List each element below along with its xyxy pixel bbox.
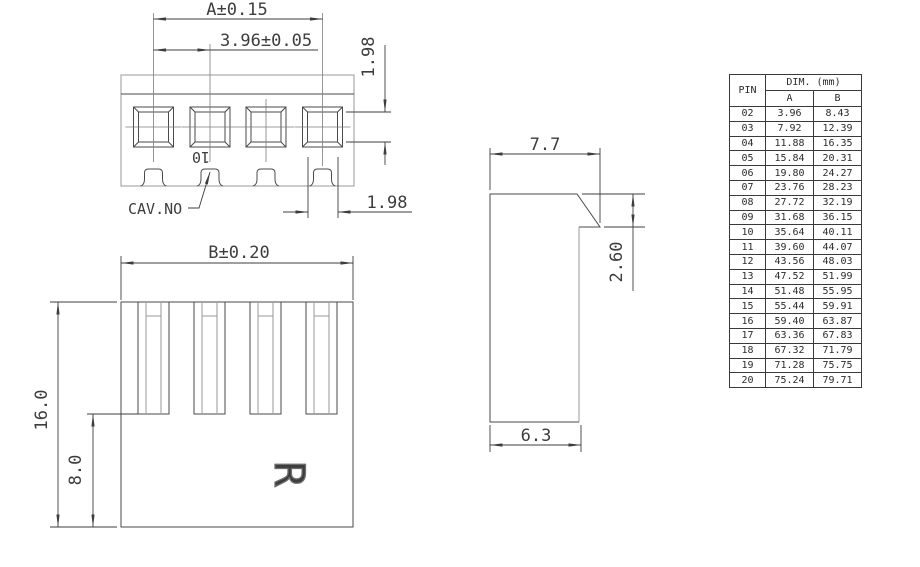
- cell-pin: 03: [730, 121, 766, 136]
- cell-a: 43.56: [766, 254, 814, 269]
- dim-overall-b-text: B±0.20: [208, 243, 269, 263]
- cell-a: 63.36: [766, 328, 814, 343]
- cell-b: 40.11: [814, 225, 862, 240]
- cell-a: 23.76: [766, 180, 814, 195]
- cell-b: 63.87: [814, 314, 862, 329]
- cell-a: 35.64: [766, 225, 814, 240]
- front-view: A±0.15 3.96±0.05 1.98 1.98 CAV.NO 10: [121, 0, 412, 218]
- cell-b: 28.23: [814, 180, 862, 195]
- table-row: 0827.7232.19: [730, 195, 862, 210]
- table-row: 2075.2479.71: [730, 373, 862, 388]
- cell-a: 3.96: [766, 107, 814, 122]
- dim-latch-height-text: 2.60: [607, 242, 627, 283]
- cell-pin: 18: [730, 343, 766, 358]
- table-row: 0931.6836.15: [730, 210, 862, 225]
- cell-b: 51.99: [814, 269, 862, 284]
- dim-slot-depth: [87, 414, 138, 527]
- cell-pin: 15: [730, 299, 766, 314]
- dim-top-width-text: 7.7: [530, 135, 561, 155]
- table-row: 1451.4855.95: [730, 284, 862, 299]
- cell-pin: 14: [730, 284, 766, 299]
- cell-pin: 02: [730, 107, 766, 122]
- dim-height-text: 16.0: [32, 390, 52, 431]
- cell-a: 47.52: [766, 269, 814, 284]
- cav-no-leader: [188, 172, 210, 208]
- dim-top-width: [490, 148, 600, 223]
- table-row: 1139.6044.07: [730, 240, 862, 255]
- header-b: B: [814, 91, 862, 107]
- table-row: 0515.8420.31: [730, 151, 862, 166]
- polarizing-tabs: [141, 169, 336, 186]
- cell-b: 32.19: [814, 195, 862, 210]
- slot-4: [306, 302, 337, 414]
- table-row: 1659.4063.87: [730, 314, 862, 329]
- cell-b: 79.71: [814, 373, 862, 388]
- dim-body-width-text: 6.3: [521, 426, 552, 446]
- dimension-table: PIN DIM. (mm) A B 023.968.43 037.9212.39…: [729, 74, 862, 388]
- cell-pin: 12: [730, 254, 766, 269]
- table-row: 1555.4459.91: [730, 299, 862, 314]
- slot-1: [138, 302, 169, 414]
- cell-pin: 20: [730, 373, 766, 388]
- cell-pin: 10: [730, 225, 766, 240]
- table-row: 0619.8024.27: [730, 166, 862, 181]
- slot-2: [194, 302, 225, 414]
- cell-b: 36.15: [814, 210, 862, 225]
- technical-drawing-sheet: A±0.15 3.96±0.05 1.98 1.98 CAV.NO 10: [0, 0, 920, 567]
- bottom-view: B±0.20 16.0 8.0 R: [32, 243, 353, 527]
- cell-b: 75.75: [814, 358, 862, 373]
- cell-a: 75.24: [766, 373, 814, 388]
- dim-cavity-height-text: 1.98: [359, 37, 379, 78]
- table-row: 1763.3667.83: [730, 328, 862, 343]
- cell-a: 27.72: [766, 195, 814, 210]
- cell-a: 7.92: [766, 121, 814, 136]
- header-pin: PIN: [730, 75, 766, 107]
- table-row: 1347.5251.99: [730, 269, 862, 284]
- dim-pitch-text: 3.96±0.05: [220, 31, 312, 51]
- cell-a: 59.40: [766, 314, 814, 329]
- cell-pin: 07: [730, 180, 766, 195]
- cell-b: 8.43: [814, 107, 862, 122]
- cell-pin: 11: [730, 240, 766, 255]
- table-header-row: PIN DIM. (mm): [730, 75, 862, 91]
- cell-b: 12.39: [814, 121, 862, 136]
- slot-3: [250, 302, 281, 414]
- cell-b: 55.95: [814, 284, 862, 299]
- cell-pin: 19: [730, 358, 766, 373]
- header-dim: DIM. (mm): [766, 75, 862, 91]
- table-row: 0411.8816.35: [730, 136, 862, 151]
- cell-b: 71.79: [814, 343, 862, 358]
- table-row: 1243.5648.03: [730, 254, 862, 269]
- table-row: 1971.2875.75: [730, 358, 862, 373]
- cell-b: 20.31: [814, 151, 862, 166]
- cell-a: 55.44: [766, 299, 814, 314]
- cav-no-label: CAV.NO: [128, 200, 182, 218]
- cell-pin: 13: [730, 269, 766, 284]
- dim-slot-depth-text: 8.0: [66, 455, 86, 486]
- dim-height: [50, 302, 117, 527]
- cell-a: 39.60: [766, 240, 814, 255]
- cell-pin: 05: [730, 151, 766, 166]
- cell-a: 51.48: [766, 284, 814, 299]
- dim-overall-a-text: A±0.15: [206, 0, 267, 20]
- cell-a: 15.84: [766, 151, 814, 166]
- header-a: A: [766, 91, 814, 107]
- table-row: 037.9212.39: [730, 121, 862, 136]
- table-row: 0723.7628.23: [730, 180, 862, 195]
- cell-b: 59.91: [814, 299, 862, 314]
- cell-a: 71.28: [766, 358, 814, 373]
- dim-cavity-width-text: 1.98: [367, 193, 408, 213]
- cavity-number-marking: 10: [192, 148, 210, 166]
- cell-pin: 06: [730, 166, 766, 181]
- cell-a: 11.88: [766, 136, 814, 151]
- side-view: 7.7 2.60 6.3: [490, 135, 645, 452]
- cell-b: 48.03: [814, 254, 862, 269]
- side-body-outline: [490, 194, 600, 422]
- cell-b: 67.83: [814, 328, 862, 343]
- table-row: 023.968.43: [730, 107, 862, 122]
- cell-pin: 09: [730, 210, 766, 225]
- cell-b: 44.07: [814, 240, 862, 255]
- cell-a: 19.80: [766, 166, 814, 181]
- cell-pin: 17: [730, 328, 766, 343]
- table-row: 1035.6440.11: [730, 225, 862, 240]
- cell-a: 67.32: [766, 343, 814, 358]
- cell-b: 24.27: [814, 166, 862, 181]
- cell-pin: 04: [730, 136, 766, 151]
- cell-a: 31.68: [766, 210, 814, 225]
- cell-pin: 16: [730, 314, 766, 329]
- cell-pin: 08: [730, 195, 766, 210]
- manufacturer-logo-mark: R: [265, 461, 314, 487]
- cell-b: 16.35: [814, 136, 862, 151]
- table-row: 1867.3271.79: [730, 343, 862, 358]
